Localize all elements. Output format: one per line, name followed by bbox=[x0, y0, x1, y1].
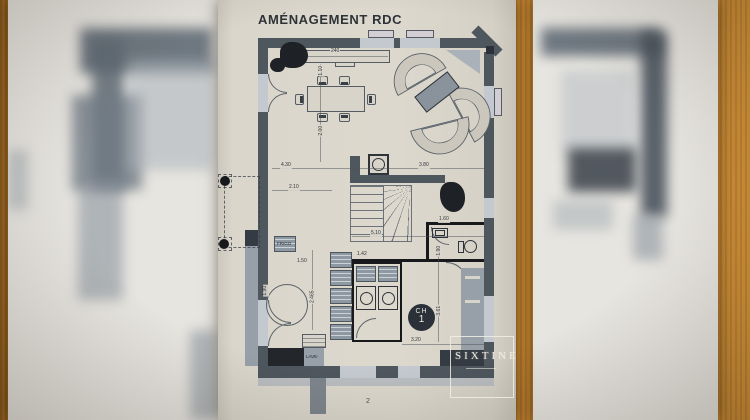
dimension-line bbox=[272, 190, 332, 191]
blurred-plan-shape bbox=[641, 32, 667, 217]
plant-icon bbox=[440, 182, 465, 212]
washing-machine-icon bbox=[356, 286, 376, 310]
window-bottom-1 bbox=[340, 366, 376, 378]
dimension-label: 3.80 bbox=[418, 163, 430, 169]
window-right-2 bbox=[484, 198, 494, 218]
laundry-shelf bbox=[378, 266, 398, 282]
sideboard-center bbox=[335, 62, 355, 67]
toilet-bowl-icon bbox=[464, 240, 477, 253]
dimension-label: 1.60 bbox=[438, 217, 450, 223]
dimension-label: 3.61 bbox=[437, 305, 443, 317]
door-arc bbox=[268, 323, 291, 346]
sideboard-line bbox=[302, 56, 388, 57]
window-bottom-2 bbox=[398, 366, 420, 378]
door-opening-left-top bbox=[258, 74, 268, 112]
chair bbox=[367, 94, 376, 105]
dimension-label: 4.30 bbox=[280, 163, 292, 169]
agency-logo-rule bbox=[466, 368, 496, 369]
dimension-label: 3.20 bbox=[410, 338, 422, 344]
left-document-blurred bbox=[8, 0, 218, 420]
kitchen-cabinet bbox=[330, 270, 352, 286]
bedroom-label-number: 1 bbox=[408, 315, 435, 324]
dimension-line bbox=[320, 64, 321, 162]
sink-unit-label: LAVE- bbox=[306, 354, 319, 359]
corner-shelf bbox=[446, 50, 480, 74]
page-number: 2 bbox=[366, 398, 370, 405]
chair bbox=[339, 76, 350, 85]
curved-sofa bbox=[411, 117, 474, 159]
dimension-label: 1.10 bbox=[319, 65, 325, 77]
window-top-2-sill bbox=[406, 30, 434, 38]
agency-logo-frame bbox=[450, 336, 514, 398]
right-document-blurred bbox=[533, 0, 718, 420]
blurred-plan-shape bbox=[553, 200, 613, 230]
window-top-2 bbox=[400, 38, 440, 48]
kitchen-cabinet bbox=[330, 324, 352, 340]
wood-stove bbox=[368, 154, 389, 175]
chair bbox=[295, 94, 304, 105]
dimension-line bbox=[272, 168, 484, 169]
window-right-1-sill bbox=[494, 88, 502, 116]
blurred-plan-shape bbox=[190, 330, 218, 420]
door-arc bbox=[268, 93, 287, 112]
left-exterior-pier bbox=[245, 230, 258, 366]
dimension-label: 1.50 bbox=[296, 259, 308, 265]
kitchen-cabinet bbox=[330, 288, 352, 304]
photo-scene: AMÉNAGEMENT RDC bbox=[0, 0, 750, 420]
utility-dot-icon bbox=[219, 239, 229, 249]
wall-stub-below bbox=[310, 378, 326, 414]
blurred-plan-shape bbox=[633, 215, 663, 260]
round-table bbox=[266, 284, 308, 326]
fridge-label: FRIGO bbox=[277, 241, 291, 246]
blurred-plan-shape bbox=[128, 60, 213, 170]
dining-table bbox=[307, 86, 365, 112]
chair bbox=[317, 113, 328, 122]
wall-wc-bottom bbox=[352, 259, 484, 262]
storage-slit bbox=[465, 276, 480, 279]
wall-socket-icon bbox=[486, 46, 494, 54]
wall-wc-left bbox=[426, 222, 429, 262]
dimension-label: 1.90 bbox=[437, 245, 443, 257]
kitchen-counter bbox=[268, 348, 304, 366]
blurred-plan-shape bbox=[568, 148, 636, 192]
floorplan-sheet: AMÉNAGEMENT RDC bbox=[218, 0, 516, 420]
electrical-panel bbox=[302, 334, 326, 348]
blurred-plan-shape bbox=[561, 70, 636, 155]
dimension-label: 2.10 bbox=[288, 185, 300, 191]
bedroom-label-badge: CH 1 bbox=[408, 304, 435, 331]
blurred-plan-shape bbox=[8, 150, 28, 210]
blurred-plan-shape bbox=[78, 180, 123, 300]
storage-slit bbox=[465, 300, 480, 303]
dryer-icon bbox=[378, 286, 398, 310]
window-top-1-sill bbox=[368, 30, 394, 38]
kitchen-cabinet bbox=[330, 306, 352, 322]
dimension-label: 1.90 bbox=[263, 285, 269, 297]
chair bbox=[317, 76, 328, 85]
agency-logo-text: SIXTINE bbox=[455, 350, 516, 362]
window-top-1 bbox=[360, 38, 394, 48]
wall-wc-top bbox=[426, 222, 484, 225]
chair bbox=[339, 113, 350, 122]
plant-icon bbox=[270, 58, 285, 72]
door-arc bbox=[268, 74, 287, 93]
dimension-label: 2.00 bbox=[319, 125, 325, 137]
kitchen-cabinet bbox=[330, 252, 352, 268]
dimension-label: 1.42 bbox=[356, 252, 368, 258]
dimension-line bbox=[438, 246, 439, 342]
dimension-label: 2.465 bbox=[311, 289, 317, 304]
dimension-label: 5.10 bbox=[370, 231, 382, 237]
utility-dot-icon bbox=[220, 176, 230, 186]
laundry-shelf bbox=[356, 266, 376, 282]
wall-partition-hall bbox=[350, 175, 445, 183]
dimension-label: 240 bbox=[330, 49, 340, 55]
staircase-winder bbox=[383, 185, 412, 242]
